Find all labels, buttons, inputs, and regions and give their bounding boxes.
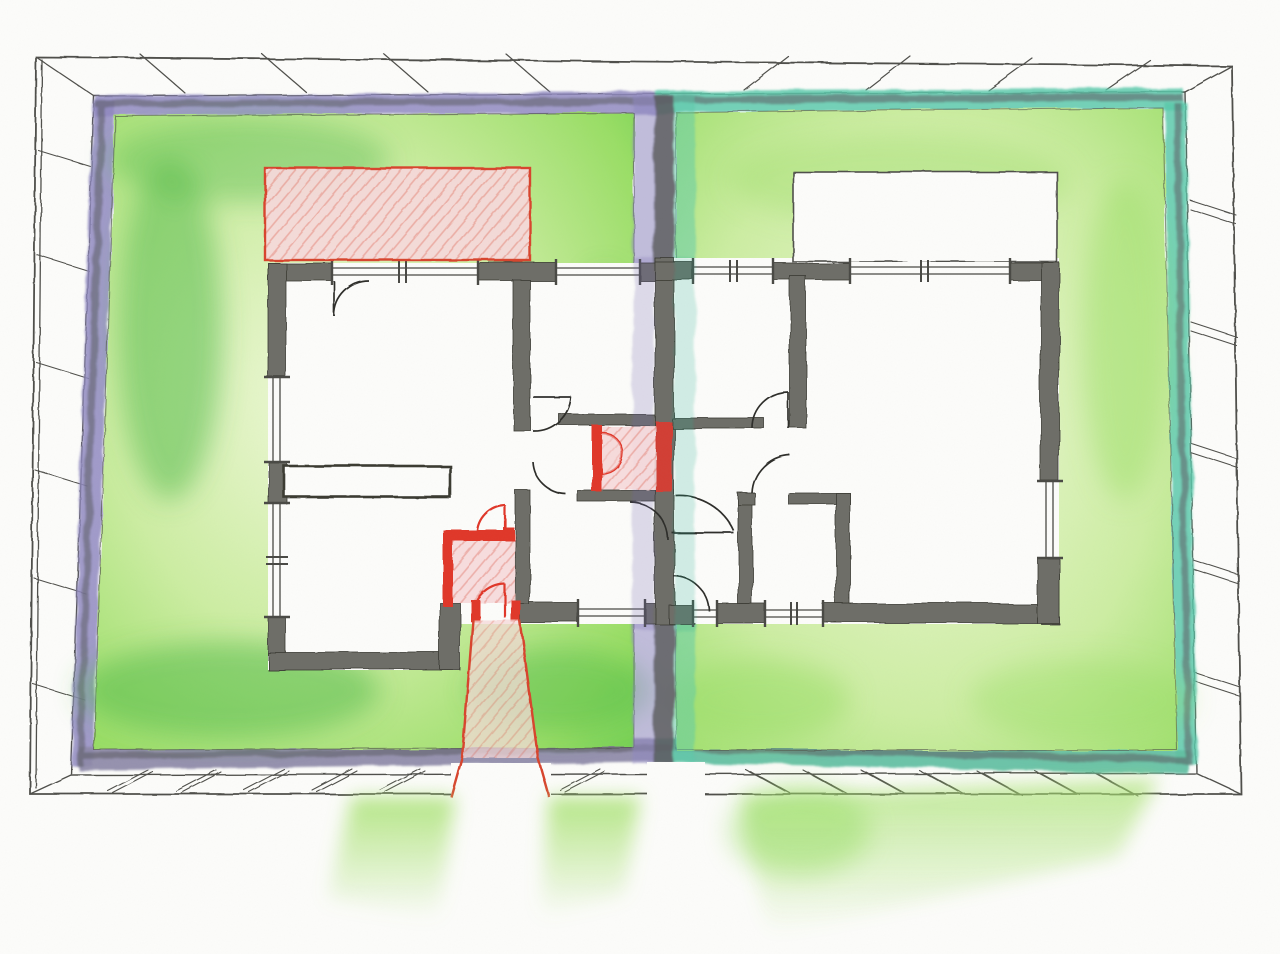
sketch-canvas: [0, 0, 1280, 954]
wall-right-south-corner: [1037, 558, 1059, 623]
gate-center-opening: [647, 762, 705, 796]
terrace-left-red: [265, 168, 530, 260]
wc-red-wall: [592, 425, 602, 492]
wall-smallroom-east: [836, 493, 850, 604]
fence-hatch-right: [1190, 200, 1240, 696]
wall-right-south-2: [717, 604, 765, 623]
beam-left-2: [541, 797, 640, 918]
wall-west-pier1: [268, 263, 286, 377]
wall-left-top-pier2: [478, 263, 556, 281]
window-right-south-main: [765, 600, 823, 627]
window-right-south-small: [693, 600, 717, 627]
wall-east-pier1: [1041, 262, 1059, 481]
gate-light-beams: [328, 779, 1158, 936]
gate-left-opening: [451, 763, 551, 796]
wall-left-room-east-pier: [440, 603, 460, 670]
vestibule-red-wall-west: [443, 530, 453, 607]
wall-lobby-south-1: [520, 603, 578, 623]
wall-hall-vertical: [513, 280, 530, 430]
south-gate-openings: [451, 762, 705, 796]
wall-smallroom-west: [738, 500, 752, 604]
beam-left-1: [328, 797, 455, 920]
beam-right-bright: [730, 785, 870, 875]
wall-right-top-pier2: [773, 262, 850, 280]
terrace-right: [793, 172, 1057, 262]
party-wall-red-bar: [656, 422, 672, 492]
wall-smallroom-north-pier: [738, 493, 755, 505]
wall-right-int-vertical: [790, 276, 806, 428]
kitchen-counter: [284, 466, 450, 497]
wall-right-south-3: [823, 604, 1037, 623]
wall-left-room-south: [268, 653, 453, 670]
path-red-jamb-east: [511, 600, 520, 622]
floor-plan-sketch: [0, 0, 1280, 954]
wall-lobby-vertical: [515, 490, 530, 605]
wc-core-red: [592, 422, 672, 492]
path-red-jamb-west: [471, 600, 480, 622]
